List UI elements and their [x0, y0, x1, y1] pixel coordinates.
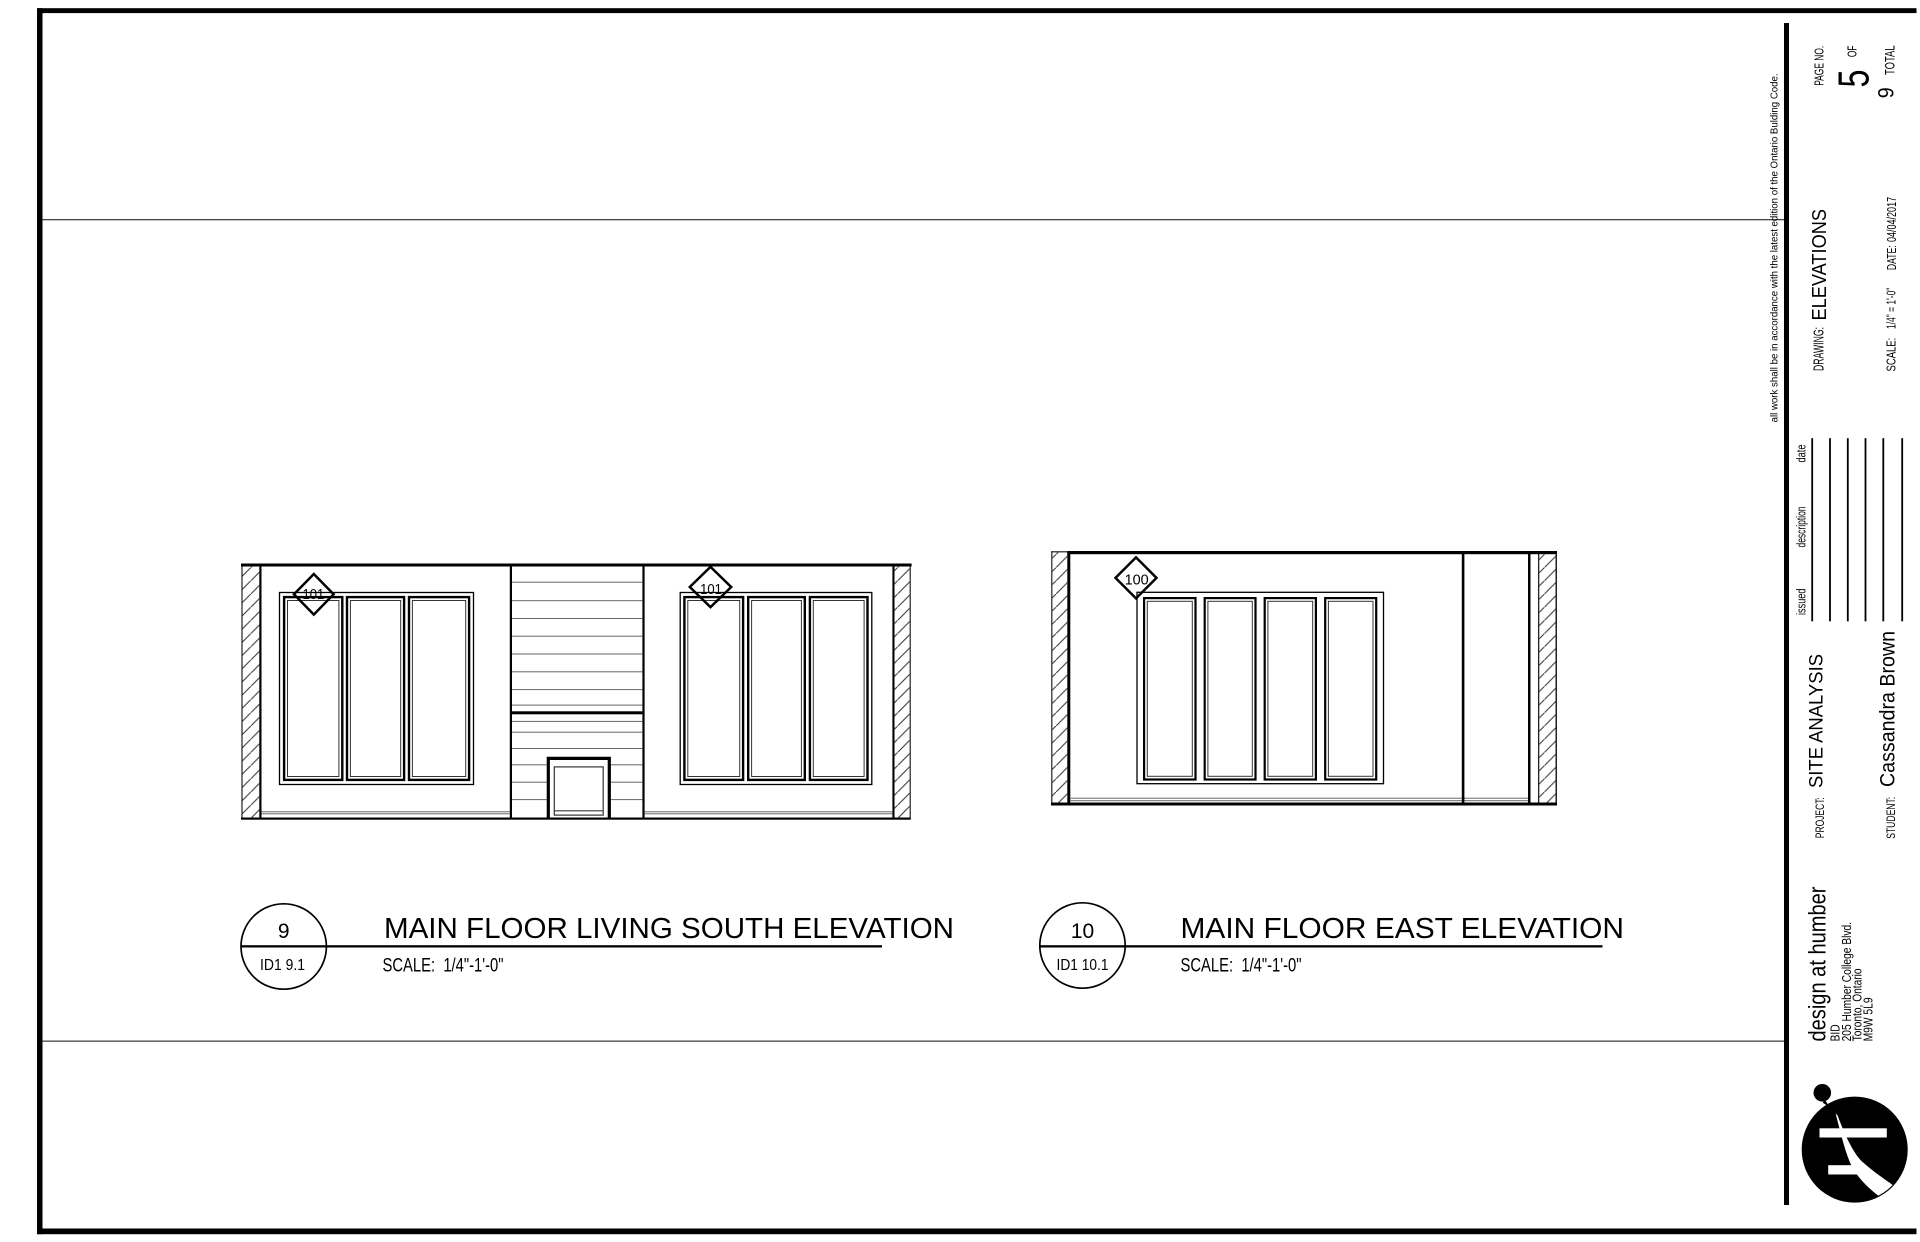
svg-text:ELEVATIONS: ELEVATIONS: [1809, 209, 1831, 321]
svg-text:100: 100: [1125, 572, 1149, 588]
svg-text:OF: OF: [1845, 45, 1860, 57]
svg-text:description: description: [1795, 506, 1809, 547]
svg-text:STUDENT:: STUDENT:: [1884, 797, 1898, 839]
svg-text:10: 10: [1071, 920, 1094, 943]
svg-text:all work shall be in accordanc: all work shall be in accordance with the…: [1770, 73, 1781, 422]
svg-text:MAIN FLOOR EAST ELEVATION: MAIN FLOOR EAST ELEVATION: [1181, 913, 1625, 945]
svg-text:ID1 10.1: ID1 10.1: [1057, 957, 1109, 974]
svg-text:1/4" = 1'-0": 1/4" = 1'-0": [1884, 287, 1899, 329]
svg-text:SCALE: 1/4"-1'-0": SCALE: 1/4"-1'-0": [383, 956, 504, 977]
svg-text:MAIN FLOOR LIVING SOUTH ELEVAT: MAIN FLOOR LIVING SOUTH ELEVATION: [384, 913, 954, 945]
svg-text:04/04/2017: 04/04/2017: [1884, 197, 1899, 242]
svg-text:design at humber: design at humber: [1804, 887, 1831, 1042]
svg-text:5: 5: [1830, 70, 1879, 88]
svg-text:9: 9: [278, 920, 290, 943]
svg-text:9: 9: [1874, 87, 1899, 98]
svg-text:SCALE:: SCALE:: [1884, 338, 1899, 372]
svg-text:Cassandra Brown: Cassandra Brown: [1876, 631, 1900, 787]
svg-text:101: 101: [303, 587, 325, 603]
svg-text:101: 101: [700, 582, 722, 598]
svg-text:TOTAL: TOTAL: [1882, 45, 1898, 75]
svg-text:DATE:: DATE:: [1884, 245, 1899, 270]
svg-text:DRAWING:: DRAWING:: [1810, 327, 1827, 371]
svg-text:SCALE: 1/4"-1'-0": SCALE: 1/4"-1'-0": [1181, 956, 1302, 977]
svg-text:M9W 5L9: M9W 5L9: [1862, 997, 1876, 1041]
svg-text:SITE ANALYSIS: SITE ANALYSIS: [1807, 654, 1828, 788]
svg-text:ID1 9.1: ID1 9.1: [260, 957, 305, 974]
svg-text:issued: issued: [1795, 588, 1809, 615]
svg-text:date: date: [1795, 444, 1809, 462]
svg-text:PROJECT:: PROJECT:: [1813, 797, 1827, 838]
svg-text:PAGE NO.: PAGE NO.: [1811, 46, 1826, 86]
